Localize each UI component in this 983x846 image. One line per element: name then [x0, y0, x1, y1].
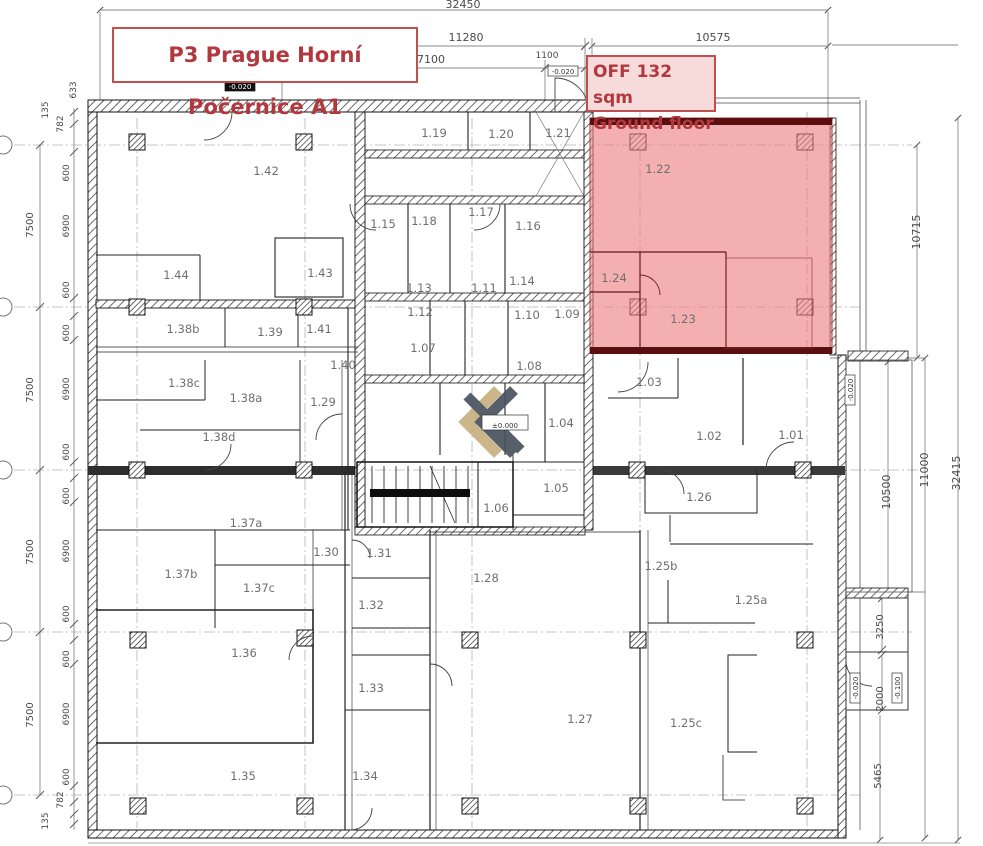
column — [629, 462, 645, 478]
room-label-1.11: 1.11 — [471, 281, 497, 295]
level-label: -0.020 — [552, 68, 575, 76]
plan-title-annotation[interactable]: P3 Prague Horní Počernice A1 — [112, 27, 418, 83]
dimension-label: 6900 — [62, 702, 72, 725]
room-label-1.20: 1.20 — [488, 127, 514, 141]
column — [630, 798, 646, 814]
dimension-label: 600 — [62, 164, 72, 181]
dimension-label: 600 — [62, 324, 72, 341]
column — [129, 134, 145, 150]
room-label-1.23: 1.23 — [670, 312, 696, 326]
dimension-label: 782 — [56, 791, 66, 808]
room-label-1.16: 1.16 — [515, 219, 541, 233]
dimension-label: 6900 — [62, 377, 72, 400]
dimension-label: 7500 — [25, 702, 36, 727]
column — [296, 299, 312, 315]
room-label-1.10: 1.10 — [514, 308, 540, 322]
room-label-1.27: 1.27 — [567, 712, 593, 726]
room-label-1.18: 1.18 — [411, 214, 437, 228]
dimension-label: 600 — [62, 650, 72, 667]
column — [130, 632, 146, 648]
offer-annotation[interactable]: OFF 132 sqm Ground floor — [586, 55, 716, 112]
room-label-1.15: 1.15 — [370, 217, 396, 231]
offer-area-text: OFF 132 sqm — [593, 59, 714, 111]
room-label-1.37b: 1.37b — [165, 567, 198, 581]
dimension-label: 633 — [69, 81, 79, 98]
dimension-label: 600 — [62, 443, 72, 460]
column — [795, 462, 811, 478]
room-label-1.38c: 1.38c — [168, 376, 200, 390]
dimension-label: 7100 — [417, 53, 445, 66]
dimension-label: 7500 — [25, 377, 36, 402]
offer-floor-text: Ground floor — [593, 111, 714, 137]
room-label-1.02: 1.02 — [696, 429, 722, 443]
level-label: ±0.000 — [492, 422, 518, 430]
room-label-1.38d: 1.38d — [203, 430, 236, 444]
room-label-1.01: 1.01 — [778, 428, 804, 442]
room-label-1.43: 1.43 — [307, 266, 333, 280]
plan-title-text: P3 Prague Horní Počernice A1 — [168, 43, 361, 119]
room-label-1.22: 1.22 — [645, 162, 671, 176]
room-label-1.31: 1.31 — [366, 546, 392, 560]
column — [296, 134, 312, 150]
level-label: -0.020 — [852, 677, 860, 700]
room-label-1.37c: 1.37c — [243, 581, 275, 595]
room-label-1.37a: 1.37a — [230, 516, 263, 530]
room-label-1.41: 1.41 — [306, 322, 332, 336]
column — [797, 632, 813, 648]
column — [630, 632, 646, 648]
dimension-label: 7500 — [25, 539, 36, 564]
column — [130, 798, 146, 814]
dimension-label: 135 — [41, 101, 51, 118]
dimension-label: 2000 — [875, 686, 886, 711]
room-label-1.25b: 1.25b — [645, 559, 678, 573]
room-label-1.21: 1.21 — [545, 126, 571, 140]
room-label-1.38a: 1.38a — [230, 391, 263, 405]
highlight-region-off-132sqm[interactable] — [590, 118, 832, 354]
room-label-1.05: 1.05 — [543, 481, 569, 495]
room-label-1.25a: 1.25a — [735, 593, 768, 607]
dimension-label: 600 — [62, 281, 72, 298]
room-label-1.14: 1.14 — [509, 274, 535, 288]
room-label-1.34: 1.34 — [352, 769, 378, 783]
floorplan-canvas: 1.011.021.031.041.051.061.071.081.091.10… — [0, 0, 983, 846]
column — [129, 462, 145, 478]
room-label-1.13: 1.13 — [406, 281, 432, 295]
grid-line-bubbles — [0, 136, 12, 804]
room-label-1.17: 1.17 — [468, 205, 494, 219]
room-label-1.30: 1.30 — [313, 545, 339, 559]
dimension-label: 6900 — [62, 539, 72, 562]
room-label-1.32: 1.32 — [358, 598, 384, 612]
column — [297, 798, 313, 814]
column — [296, 462, 312, 478]
room-label-1.08: 1.08 — [516, 359, 542, 373]
floorplan-drawing: 1.011.021.031.041.051.061.071.081.091.10… — [0, 0, 983, 846]
dimension-label: 10500 — [880, 475, 893, 510]
dimension-label: 1100 — [536, 51, 559, 61]
staircase — [357, 462, 513, 527]
level-label: -0.020 — [847, 379, 855, 402]
room-label-1.12: 1.12 — [407, 305, 433, 319]
dimension-label: 135 — [41, 812, 51, 829]
column — [462, 632, 478, 648]
room-label-1.36: 1.36 — [231, 646, 257, 660]
dimension-label: 600 — [62, 487, 72, 504]
room-label-1.03: 1.03 — [636, 375, 662, 389]
level-label: -0.100 — [894, 677, 902, 700]
dimension-label: 5465 — [873, 763, 884, 788]
column — [129, 299, 145, 315]
room-label-1.04: 1.04 — [548, 416, 574, 430]
room-label-1.39: 1.39 — [257, 325, 283, 339]
room-label-1.38b: 1.38b — [167, 322, 200, 336]
column — [797, 798, 813, 814]
room-label-1.09: 1.09 — [554, 307, 580, 321]
room-label-1.07: 1.07 — [410, 341, 436, 355]
room-label-1.19: 1.19 — [421, 126, 447, 140]
room-label-1.44: 1.44 — [163, 268, 189, 282]
dimension-label: 6900 — [62, 214, 72, 237]
column — [297, 630, 313, 646]
dimension-label: 782 — [56, 115, 66, 132]
room-label-1.24: 1.24 — [601, 271, 627, 285]
dimension-label: 600 — [62, 605, 72, 622]
room-label-1.26: 1.26 — [686, 490, 712, 504]
dimension-label: 600 — [62, 768, 72, 785]
dimension-label: 10715 — [910, 215, 923, 250]
dimension-label: 10575 — [696, 31, 731, 44]
room-label-1.25c: 1.25c — [670, 716, 702, 730]
dimension-label: 32415 — [950, 456, 963, 491]
room-label-1.42: 1.42 — [253, 164, 279, 178]
room-label-1.29: 1.29 — [310, 395, 336, 409]
dimension-label: 7500 — [25, 212, 36, 237]
room-label-1.35: 1.35 — [230, 769, 256, 783]
room-label-1.40: 1.40 — [330, 358, 356, 372]
room-label-1.06: 1.06 — [483, 501, 509, 515]
room-label-1.28: 1.28 — [473, 571, 499, 585]
column — [462, 798, 478, 814]
dimension-label: 11000 — [918, 453, 931, 488]
room-label-1.33: 1.33 — [358, 681, 384, 695]
dimension-label: 32450 — [446, 0, 481, 11]
dimension-label: 11280 — [449, 31, 484, 44]
dimension-label: 3250 — [875, 614, 886, 639]
